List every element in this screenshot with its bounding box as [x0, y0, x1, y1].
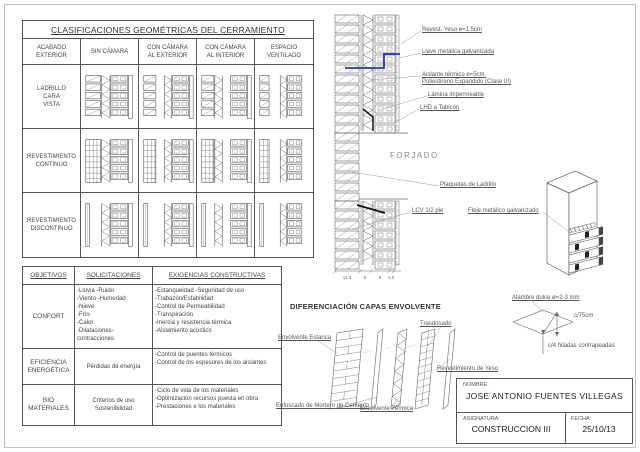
envelope-diagram-title: DIFERENCIACIÓN CAPAS ENVOLVENTE	[290, 302, 441, 311]
callout-fleje-metalico: Fleje metálico galvanizado	[468, 208, 539, 215]
row-label-revestimiento-continuo: REVESTIMIENTO CONTINUO	[23, 129, 81, 193]
eficiencia-requirements: -Control de puentes térmicos -Control de…	[153, 349, 281, 385]
col-header-camara-interior: CON CÁMARA AL INTERIOR	[197, 39, 255, 65]
name-label: NOMBRE:	[463, 382, 489, 388]
label-envolvente-estanca: Envolvente Estanca	[278, 335, 331, 342]
callout-aislante-termico: Aislante térmico e=5cm. Poliestireno Exp…	[422, 72, 511, 86]
bio-solicitations: Criterios de uso Sostenibilidad	[75, 385, 153, 425]
row-label-ladrillo-cara-vista: LADRILLO CARA VISTA	[23, 65, 81, 129]
dim-aislante: 5	[364, 275, 367, 280]
title-block-name-row: NOMBRE: JOSE ANTONIO FUENTES VILLEGAS	[457, 379, 632, 413]
label-revestimiento-yeso: Revestimiento de Yeso	[437, 366, 498, 373]
col-header-acabado: ACABADO EXTERIOR	[23, 39, 81, 65]
wall-sketch	[197, 129, 255, 193]
label-enfoscado-mortero: Enfoscado de Mortero de Cemento	[276, 403, 369, 410]
wall-sketch	[255, 129, 313, 193]
eficiencia-solicitations: Pérdidas de energía	[75, 349, 153, 385]
confort-solicitations: -Lluvia -Ruido -Viento -Humedad -Nieve -…	[75, 285, 153, 349]
subject-label: ASIGNATURA:	[463, 416, 500, 422]
col-header-camara-exterior: CON CÁMARA AL EXTERIOR	[139, 39, 197, 65]
student-name: JOSE ANTONIO FUENTES VILLEGAS	[457, 391, 632, 401]
obj-header-solicitaciones: SOLICITACIONES	[75, 267, 153, 285]
callout-plaquetas-ladrillo: Plaquetas de Ladrillo	[440, 182, 496, 189]
objectives-table: OBJETIVOS SOLICITACIONES EXIGENCIAS CONS…	[22, 266, 282, 426]
col-header-sin-camara: SIN CÁMARA	[81, 39, 139, 65]
label-envolvente-termica: Envolvente Térmica	[360, 406, 413, 413]
row-label-revestimiento-discontinuo: REVESTIMIENTO DISCONTINUO	[23, 193, 81, 257]
title-block-date-cell: FECHA: 25/10/13	[566, 413, 632, 443]
pillar-isometric	[535, 163, 635, 298]
wall-sketch	[255, 193, 313, 257]
col-header-espacio-ventilado: ESPACIO VENTILADO	[255, 39, 313, 65]
classification-table: CLASIFICACIONES GEOMÉTRICAS DEL CERRAMIE…	[22, 20, 314, 258]
dim-lhd: 8	[379, 275, 382, 280]
subject-value: CONSTRUCCION III	[457, 424, 565, 434]
dim-yeso: 1.5	[388, 275, 395, 280]
wall-section-detail: 11.4 5 8 1.5	[333, 13, 418, 283]
wall-sketch	[197, 65, 255, 129]
classification-title: CLASIFICACIONES GEOMÉTRICAS DEL CERRAMIE…	[23, 21, 313, 39]
obj-row-confort: CONFORT	[23, 285, 75, 349]
dim-lcv: 11.4	[343, 275, 352, 280]
wire-spacing-label: c/75cm	[574, 313, 593, 320]
wall-sketch	[139, 193, 197, 257]
callout-lcv-medio-pie: LCV 1/2 pie	[412, 208, 443, 215]
callout-revestimiento-yeso: Revest. Yeso e=1.5cm	[422, 27, 482, 34]
date-label: FECHA:	[571, 416, 591, 422]
callout-lamina-impermeable: Lámina impermeable	[428, 92, 484, 99]
wall-sketch	[197, 193, 255, 257]
bio-requirements: -Ciclo de vida de los materiales -Optimi…	[153, 385, 281, 425]
confort-requirements: -Estanqueidad -Seguridad de uso -Trabazó…	[153, 285, 281, 349]
title-block: NOMBRE: JOSE ANTONIO FUENTES VILLEGAS AS…	[456, 378, 633, 444]
callout-lhd-tabicon: LHD a Tabicón	[420, 105, 459, 112]
obj-row-bio: BIO MATERIALES	[23, 385, 75, 425]
drawing-sheet: CLASIFICACIONES GEOMÉTRICAS DEL CERRAMIE…	[0, 0, 640, 452]
obj-header-exigencias: EXIGENCIAS CONSTRUCTIVAS	[153, 267, 281, 285]
forjado-label: FORJADO	[390, 151, 439, 160]
wall-sketch	[139, 129, 197, 193]
label-trasdosado: Trasdosado	[420, 321, 451, 328]
callout-alambre-dulce: Alambre dulce ø=2-3 mm	[512, 295, 580, 302]
obj-row-eficiencia: EFICIENCIA ENERGÉTICA	[23, 349, 75, 385]
wall-sketch	[139, 65, 197, 129]
date-value: 25/10/13	[566, 424, 632, 434]
wall-sketch	[81, 129, 139, 193]
title-block-subject-cell: ASIGNATURA: CONSTRUCCION III	[457, 413, 566, 443]
callout-llave-metalica: Llave metálica galvanizada	[422, 49, 494, 56]
wall-sketch	[81, 193, 139, 257]
wall-sketch	[255, 65, 313, 129]
wire-note-label: c/4 hiladas contrapeadas	[548, 343, 615, 350]
obj-header-objetivos: OBJETIVOS	[23, 267, 75, 285]
wall-sketch	[81, 65, 139, 129]
